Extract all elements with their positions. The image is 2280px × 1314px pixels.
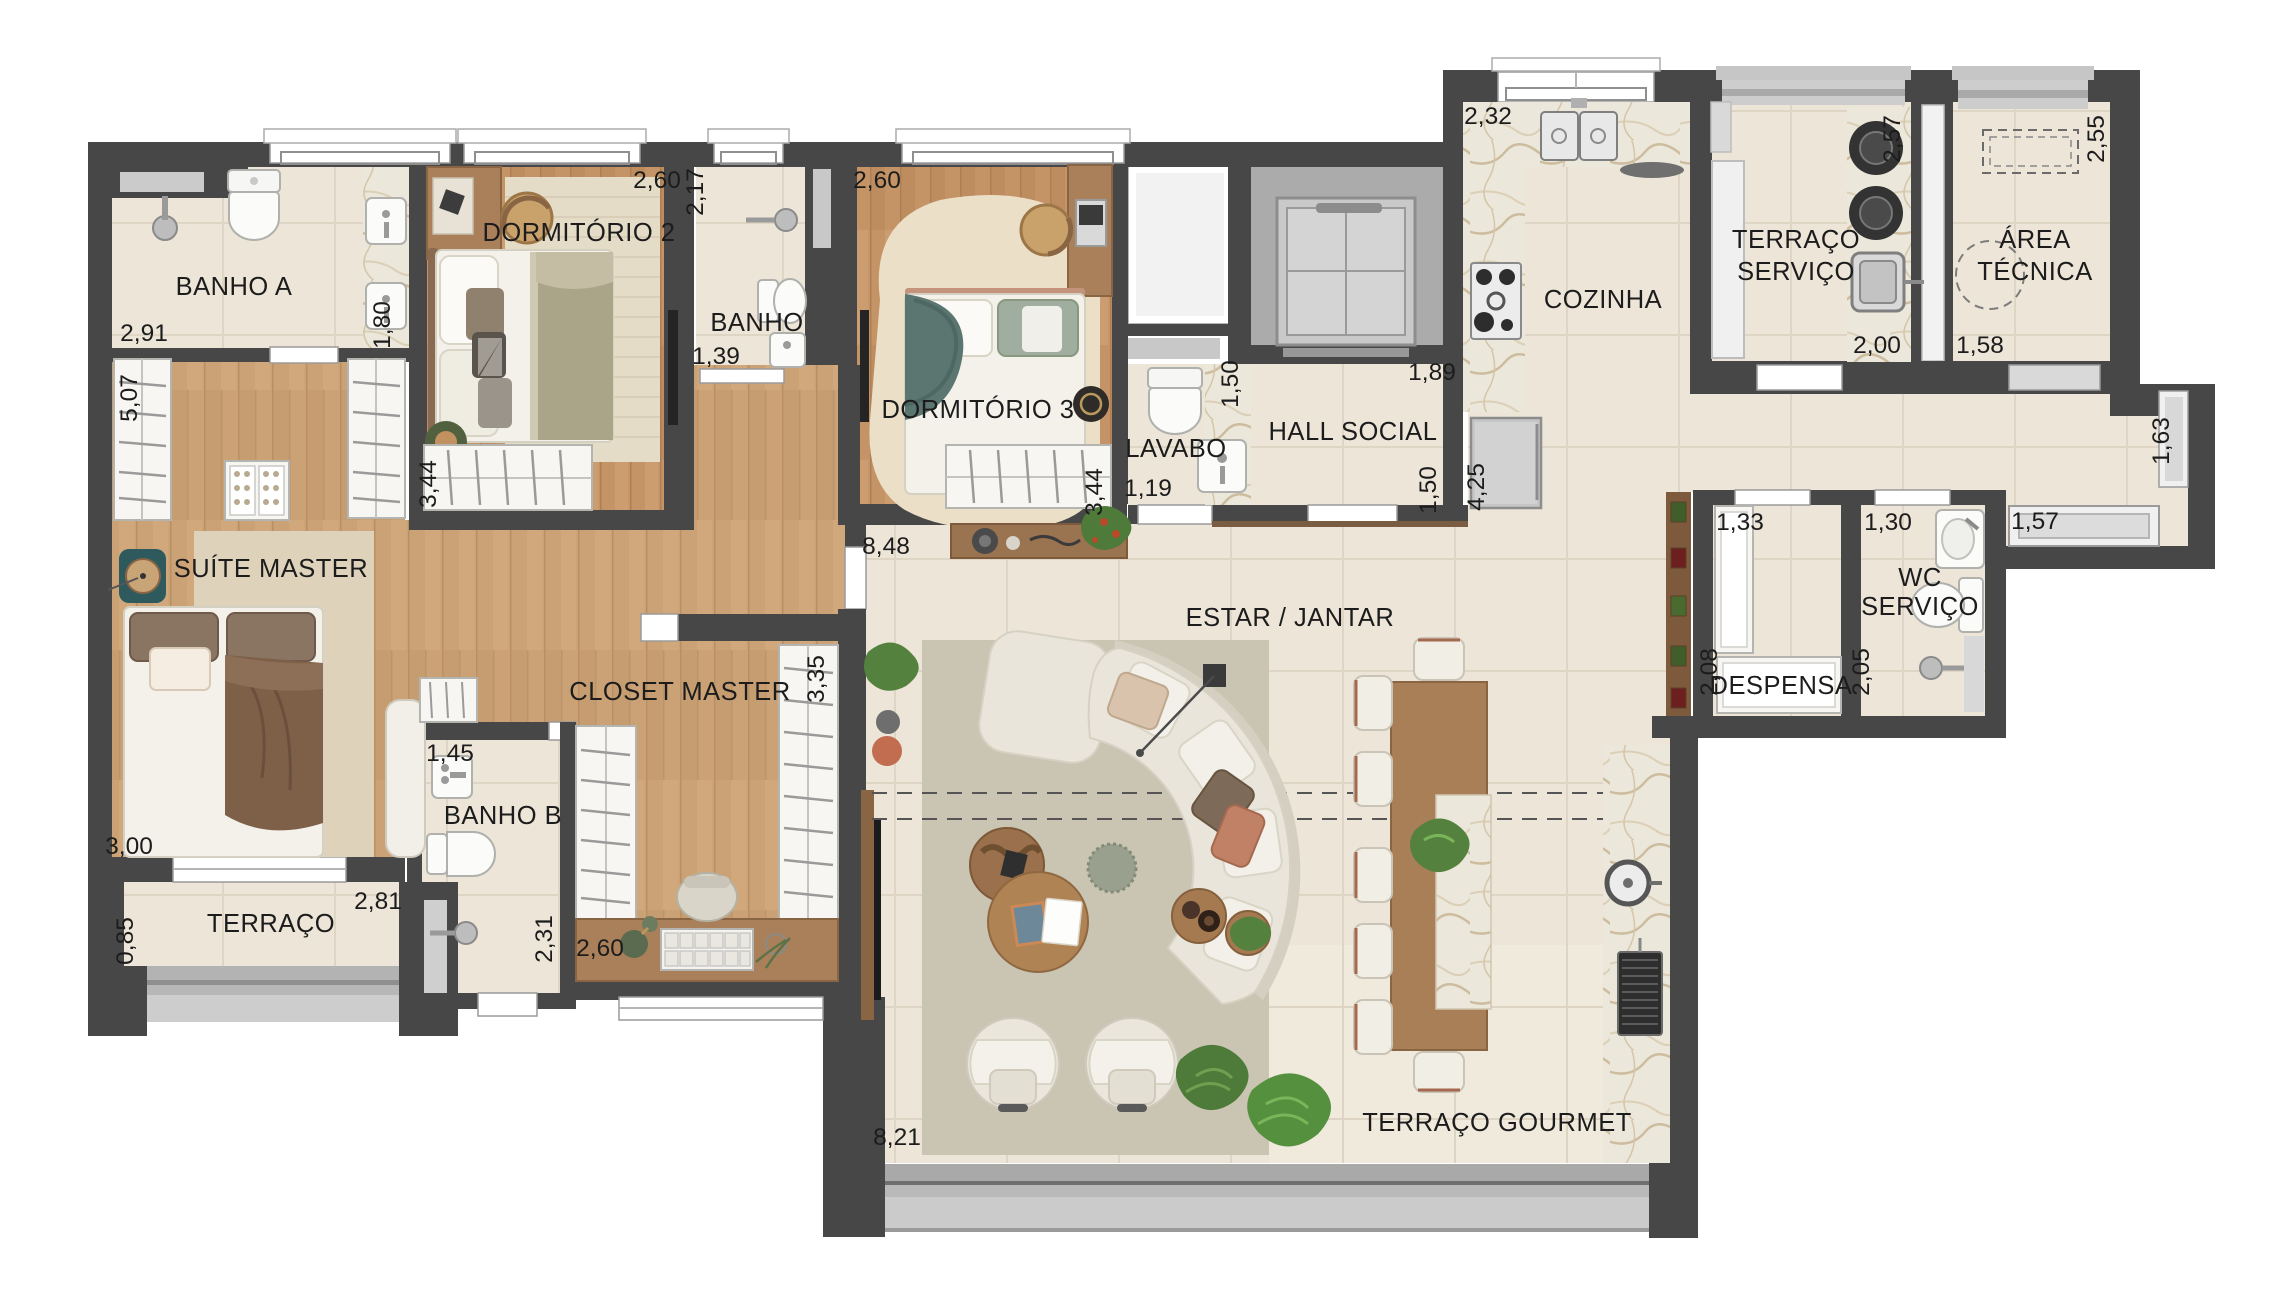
svg-text:SUÍTE MASTER: SUÍTE MASTER [174,554,368,583]
svg-text:BANHO B: BANHO B [444,802,562,830]
svg-text:1,58: 1,58 [1956,332,2004,359]
svg-text:1,63: 1,63 [2148,417,2175,465]
svg-text:2,81: 2,81 [354,888,402,915]
svg-text:8,21: 8,21 [873,1124,921,1151]
svg-text:COZINHA: COZINHA [1544,286,1662,314]
svg-text:1,45: 1,45 [426,740,474,767]
svg-text:TERRAÇO GOURMET: TERRAÇO GOURMET [1362,1109,1632,1137]
svg-text:1,80: 1,80 [369,301,396,349]
svg-text:1,19: 1,19 [1124,475,1172,502]
svg-text:3,00: 3,00 [105,833,153,860]
svg-text:CLOSET MASTER: CLOSET MASTER [569,678,790,706]
svg-text:2,31: 2,31 [531,915,558,963]
svg-text:2,60: 2,60 [633,167,681,194]
svg-text:2,05: 2,05 [1848,648,1875,696]
svg-text:BANHO: BANHO [710,309,803,337]
svg-text:TERRAÇO: TERRAÇO [1732,226,1860,254]
svg-text:0,85: 0,85 [112,917,139,965]
svg-text:DORMITÓRIO 3: DORMITÓRIO 3 [881,395,1074,424]
svg-text:TERRAÇO: TERRAÇO [207,910,335,938]
svg-text:TÉCNICA: TÉCNICA [1977,257,2092,286]
svg-text:ÁREA: ÁREA [1999,225,2070,254]
svg-text:3,44: 3,44 [415,460,442,508]
svg-text:1,30: 1,30 [1864,509,1912,536]
svg-text:4,25: 4,25 [1463,463,1490,511]
svg-text:DESPENSA: DESPENSA [1710,672,1853,700]
svg-text:1,89: 1,89 [1408,359,1456,386]
svg-text:LAVABO: LAVABO [1125,435,1226,463]
svg-text:HALL SOCIAL: HALL SOCIAL [1269,418,1438,446]
svg-text:3,44: 3,44 [1081,468,1108,516]
svg-text:2,08: 2,08 [1696,648,1723,696]
svg-text:WC: WC [1898,564,1941,592]
svg-text:3,35: 3,35 [803,655,830,703]
svg-text:5,07: 5,07 [116,374,143,422]
svg-text:2,91: 2,91 [120,320,168,347]
svg-text:2,57: 2,57 [1879,115,1906,163]
svg-text:2,60: 2,60 [576,935,624,962]
svg-text:1,39: 1,39 [692,343,740,370]
svg-text:BANHO A: BANHO A [176,273,293,301]
svg-text:DORMITÓRIO 2: DORMITÓRIO 2 [482,218,675,247]
svg-text:1,33: 1,33 [1716,509,1764,536]
svg-text:2,00: 2,00 [1853,332,1901,359]
svg-text:2,55: 2,55 [2083,115,2110,163]
svg-text:1,57: 1,57 [2011,508,2059,535]
svg-text:2,60: 2,60 [853,167,901,194]
svg-text:2,17: 2,17 [682,168,709,216]
svg-text:SERVIÇO: SERVIÇO [1861,593,1979,621]
svg-text:SERVIÇO: SERVIÇO [1737,258,1855,286]
svg-text:1,50: 1,50 [1415,466,1442,514]
svg-text:8,48: 8,48 [862,533,910,560]
svg-text:2,32: 2,32 [1464,103,1512,130]
svg-text:1,50: 1,50 [1217,360,1244,408]
svg-text:ESTAR / JANTAR: ESTAR / JANTAR [1186,604,1395,632]
